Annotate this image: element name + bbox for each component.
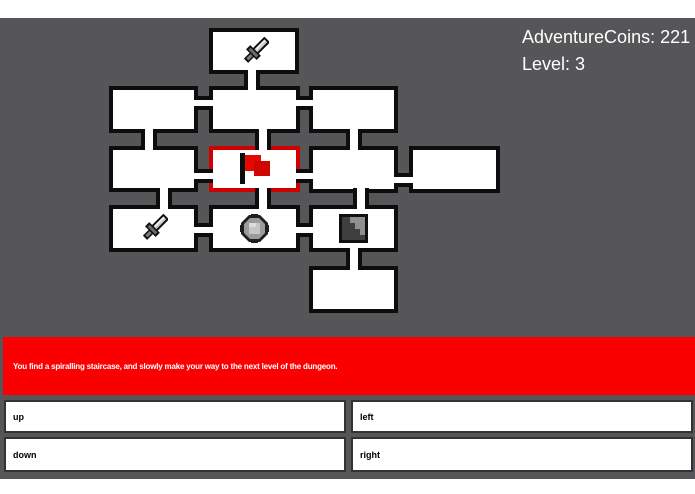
map-room	[409, 146, 500, 193]
game-screen: AdventureCoins: 221 Level: 3 You find a …	[0, 0, 695, 494]
stairs-icon	[339, 214, 368, 243]
map-corridor	[296, 96, 313, 110]
map-corridor	[346, 248, 362, 270]
map-corridor	[194, 96, 213, 110]
sword-icon	[139, 214, 168, 243]
left-button[interactable]: left	[351, 400, 693, 433]
map-corridor	[255, 188, 271, 209]
coin-icon	[240, 214, 269, 243]
map-room	[309, 205, 398, 252]
map-corridor	[141, 129, 157, 150]
map-corridor	[194, 169, 213, 183]
hud: AdventureCoins: 221 Level: 3	[522, 24, 690, 78]
up-button[interactable]: up	[4, 400, 346, 433]
up-button-label: up	[13, 412, 24, 422]
map-room	[109, 86, 198, 133]
map-room	[109, 205, 198, 252]
map-corridor	[194, 223, 213, 237]
map-corridor	[296, 223, 313, 237]
map-room	[309, 266, 398, 313]
map-corridor	[244, 70, 260, 90]
map-room	[109, 146, 198, 192]
map-room	[309, 146, 398, 193]
right-button[interactable]: right	[351, 437, 693, 472]
map-room	[209, 205, 300, 252]
left-button-label: left	[360, 412, 374, 422]
map-corridor	[255, 129, 271, 150]
message-text: You find a spiralling staircase, and slo…	[3, 362, 337, 371]
sword-icon	[240, 37, 269, 66]
map-corridor	[346, 129, 362, 150]
level-label: Level: 3	[522, 51, 690, 78]
flag-icon	[238, 153, 272, 185]
map-corridor	[394, 173, 413, 187]
map-room-current	[209, 146, 300, 192]
map-corridor	[156, 188, 172, 209]
adventure-coins-label: AdventureCoins: 221	[522, 24, 690, 51]
map-room	[209, 28, 299, 74]
map-corridor	[353, 188, 369, 209]
message-banner: You find a spiralling staircase, and slo…	[3, 337, 695, 395]
right-button-label: right	[360, 450, 380, 460]
map-room	[209, 86, 300, 133]
down-button[interactable]: down	[4, 437, 346, 472]
down-button-label: down	[13, 450, 37, 460]
map-room	[309, 86, 398, 133]
map-corridor	[296, 169, 313, 183]
